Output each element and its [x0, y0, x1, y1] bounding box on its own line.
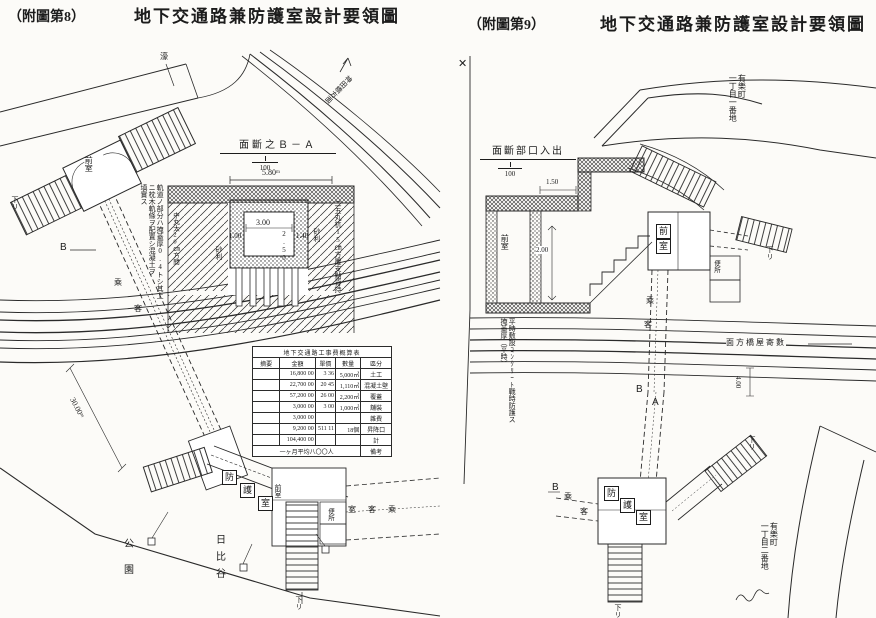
cell-unit: 511 11 — [315, 424, 335, 435]
dim-inner-height: 2.50 — [280, 230, 288, 260]
table-note-row: 一ヶ月平均八〇〇人 備考 — [253, 446, 392, 457]
fig9-title: 地下交通路兼防護室設計要領圖 — [600, 15, 866, 35]
corridor-char-ride-lower: 乘 — [564, 492, 572, 501]
dim-top-width: 5.80ᵐ — [262, 168, 280, 177]
fig8-number: （附圖第8） — [8, 10, 85, 26]
entrance-section-scale: 100 — [498, 168, 522, 178]
pile-support-note: 二五丸杭15㎝方覆支點背持 — [334, 200, 342, 300]
cell-qty: 1,000㎡ — [336, 402, 361, 413]
cell-item: 昇降口 — [361, 424, 392, 435]
down-stairs-top-label: 下リ — [11, 196, 19, 218]
cell-qty: 18個 — [336, 424, 361, 435]
track-cover-note-col2: ニ枕木軌條ヲ配置シ混凝土ヲ — [148, 184, 156, 362]
cell-amount: 57,200 00 — [280, 391, 316, 402]
park-label: 公園 — [121, 538, 133, 616]
cell-qty: 1,110㎥ — [336, 380, 361, 391]
cell-note — [253, 369, 280, 380]
cell-qty — [336, 435, 361, 446]
cell-qty — [336, 413, 361, 424]
passenger-room-label: 室客乘 — [348, 505, 408, 514]
shelter-char-shitsu-right: 室 — [636, 510, 651, 525]
dim-wall-left: 1.00 — [229, 232, 241, 240]
gravel-right-label: 砂利 — [313, 228, 321, 254]
down-stairs-bottom-label: 下リ — [295, 596, 303, 618]
cell-item: 混凝土壁 — [361, 380, 392, 391]
cost-table-header-row: 摘要 金額 單價 數量 區分 — [253, 358, 392, 369]
table-row: 3,000 00 3 00 1,000㎡ 舖裝 — [253, 402, 392, 413]
fig9-number: （附圖第9） — [468, 18, 545, 34]
cost-table: 地下交通路工事費概算表 摘要 金額 單價 數量 區分 16,800 00 3 3… — [252, 346, 392, 457]
address-top-town: 有樂町 — [737, 74, 746, 180]
cell-qty: 2,200㎡ — [336, 391, 361, 402]
cell-note — [253, 391, 280, 402]
sukiyabashi-direction-label: 面方橋屋寄數 — [726, 338, 786, 347]
down-stairs-south-label: 下リ — [614, 604, 622, 618]
entrance-notes: 平時敷設ｺﾝｸﾘｰﾄ戰時防護ス 掩蓋厚（平時） — [500, 318, 516, 414]
anteroom-section-label: 前室 — [500, 234, 509, 260]
address-top-label: 有樂町 一丁目一番地 — [728, 74, 746, 180]
address-bottom-label: 有樂町 一丁目二番地 — [760, 522, 778, 618]
cell-item: 計 — [361, 435, 392, 446]
right-drawing — [464, 56, 876, 618]
col-quantity: 數量 — [336, 358, 361, 369]
table-row: 16,800 00 3 36 5,000㎥ 土工 — [253, 369, 392, 380]
table-row: 104,400 00 計 — [253, 435, 392, 446]
scanned-drawing-page: （附圖第8） 地下交通路兼防護室設計要領圖 濠 神田橋方面 面斷之Ｂ－Ａ 100… — [0, 0, 876, 618]
track-cover-note: 軌道ノ部分ハ掩蓋厚0.4トシ其上 ニ枕木軌條ヲ配置シ混凝土ヲ 填實ス — [140, 184, 164, 362]
entrance-section-title: 面斷部口入出 — [480, 146, 576, 160]
fig8-title: 地下交通路兼防護室設計要領圖 — [134, 7, 400, 27]
timber-note: 中丸太20㎝方間 — [171, 212, 178, 296]
cell-amount: 3,000 00 — [280, 402, 316, 413]
cell-unit — [315, 435, 335, 446]
cell-item: 覆蓋 — [361, 391, 392, 402]
cell-note — [253, 402, 280, 413]
gravel-left-label: 砂利 — [215, 246, 223, 272]
cost-table-title: 地下交通路工事費概算表 — [253, 347, 392, 358]
col-category: 區分 — [361, 358, 392, 369]
cell-note — [253, 424, 280, 435]
shelter-char-bo-right: 防 — [604, 486, 619, 501]
cell-amount: 9,200 00 — [280, 424, 316, 435]
dim-wall-right: 1.40 — [296, 232, 308, 240]
track-cover-note-col3: 填實ス — [140, 184, 148, 362]
down-stairs-ne-label: 下リ — [766, 246, 774, 268]
shelter-char-shitsu: 室 — [258, 496, 273, 511]
anteroom-top-label: 前室 — [84, 156, 93, 182]
corridor-char-passenger-right: 客 — [644, 320, 652, 329]
table-note: 一ヶ月平均八〇〇人 — [253, 446, 361, 457]
table-row: 57,200 00 26 00 2,200㎡ 覆蓋 — [253, 391, 392, 402]
shelter-char-bo: 防 — [222, 470, 237, 485]
table-remark: 備考 — [361, 446, 392, 457]
toilet-right-label: 便所 — [712, 260, 719, 282]
cell-unit — [315, 413, 335, 424]
section-ab-title: 面斷之Ｂ－Ａ — [220, 140, 336, 154]
road-width-dim: 4.00 — [734, 376, 742, 388]
cell-item: 雜費 — [361, 413, 392, 424]
cell-unit: 26 00 — [315, 391, 335, 402]
down-stairs-se-label: 下リ — [748, 436, 756, 458]
col-remarks: 摘要 — [253, 358, 280, 369]
marker-b2-corridor: B — [636, 384, 643, 396]
x-survey-marker: ✕ — [458, 58, 467, 71]
left-drawing — [0, 50, 440, 616]
cell-unit: 3 36 — [315, 369, 335, 380]
cell-qty: 5,000㎥ — [336, 369, 361, 380]
room-char-room: 室 — [656, 239, 671, 254]
scale-tick — [510, 162, 511, 167]
shelter-char-go-right: 護 — [620, 498, 635, 513]
col-amount: 金額 — [280, 358, 316, 369]
hibiya-label: 日比谷 — [213, 534, 225, 612]
cell-item: 舖裝 — [361, 402, 392, 413]
dim-inner-width: 3.00 — [256, 218, 270, 227]
cell-note — [253, 435, 280, 446]
cell-unit: 20 45 — [315, 380, 335, 391]
corridor-char-passenger: 客 — [134, 304, 142, 313]
shelter-char-go: 護 — [240, 483, 255, 498]
corridor-char-ride: 乘 — [114, 278, 122, 287]
room-char-front: 前 — [656, 224, 671, 239]
cell-note — [253, 380, 280, 391]
col-unit-price: 單價 — [315, 358, 335, 369]
table-row: 22,700 00 20 45 1,110㎥ 混凝土壁 — [253, 380, 392, 391]
marker-a-corridor: A — [652, 397, 659, 409]
address-bottom-town: 有樂町 — [769, 522, 778, 618]
entrance-note-col2: 掩蓋厚（平時） — [500, 318, 508, 414]
dim-step: 1.50 — [546, 178, 558, 186]
entrance-note-col1: 平時敷設ｺﾝｸﾘｰﾄ戰時防護ス — [508, 318, 516, 414]
dim-height: 2.00 — [536, 246, 548, 254]
corridor-char-passenger-lower: 客 — [580, 507, 588, 516]
cell-amount: 22,700 00 — [280, 380, 316, 391]
scale-tick — [265, 156, 266, 161]
table-row: 9,200 00 511 11 18個 昇降口 — [253, 424, 392, 435]
cell-note — [253, 413, 280, 424]
toilet-left-label: 便所 — [326, 508, 333, 530]
marker-b-left-drawing: B — [60, 242, 67, 254]
address-bottom-block: 一丁目二番地 — [760, 522, 769, 618]
cell-amount: 16,800 00 — [280, 369, 316, 380]
cell-amount: 104,400 00 — [280, 435, 316, 446]
corridor-char-ride-right: 乘 — [646, 296, 654, 305]
table-row: 3,000 00 雜費 — [253, 413, 392, 424]
track-cover-note-col1: 軌道ノ部分ハ掩蓋厚0.4トシ其上 — [156, 184, 164, 362]
cell-item: 土工 — [361, 369, 392, 380]
cell-unit: 3 00 — [315, 402, 335, 413]
cell-amount: 3,000 00 — [280, 413, 316, 424]
moat-label: 濠 — [160, 52, 168, 61]
marker-b-corridor: B — [552, 482, 559, 494]
anteroom-bottom-label: 前室 — [274, 484, 282, 508]
address-top-block: 一丁目一番地 — [728, 74, 737, 180]
